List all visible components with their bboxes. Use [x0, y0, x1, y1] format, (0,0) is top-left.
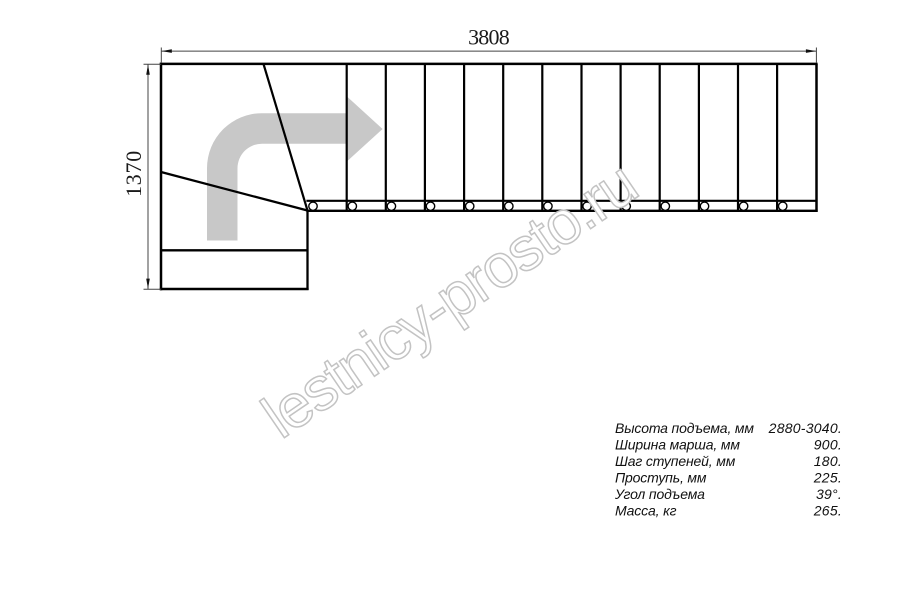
- svg-text:Проступь, мм: Проступь, мм: [615, 470, 707, 486]
- svg-text:Ширина марша, мм: Ширина марша, мм: [615, 437, 740, 453]
- svg-text:900.: 900.: [814, 437, 842, 453]
- svg-text:265.: 265.: [813, 503, 842, 519]
- svg-text:Шаг ступеней, мм: Шаг ступеней, мм: [615, 453, 736, 469]
- svg-text:1370: 1370: [121, 150, 146, 197]
- svg-text:225.: 225.: [813, 470, 842, 486]
- svg-text:Масса, кг: Масса, кг: [615, 503, 677, 519]
- svg-text:180.: 180.: [814, 453, 842, 469]
- svg-text:3808: 3808: [468, 25, 510, 50]
- svg-text:Угол подъема: Угол подъема: [614, 486, 705, 502]
- svg-text:39°.: 39°.: [816, 486, 842, 502]
- svg-text:Высота подъема, мм: Высота подъема, мм: [615, 420, 754, 436]
- svg-text:2880-3040.: 2880-3040.: [768, 420, 842, 436]
